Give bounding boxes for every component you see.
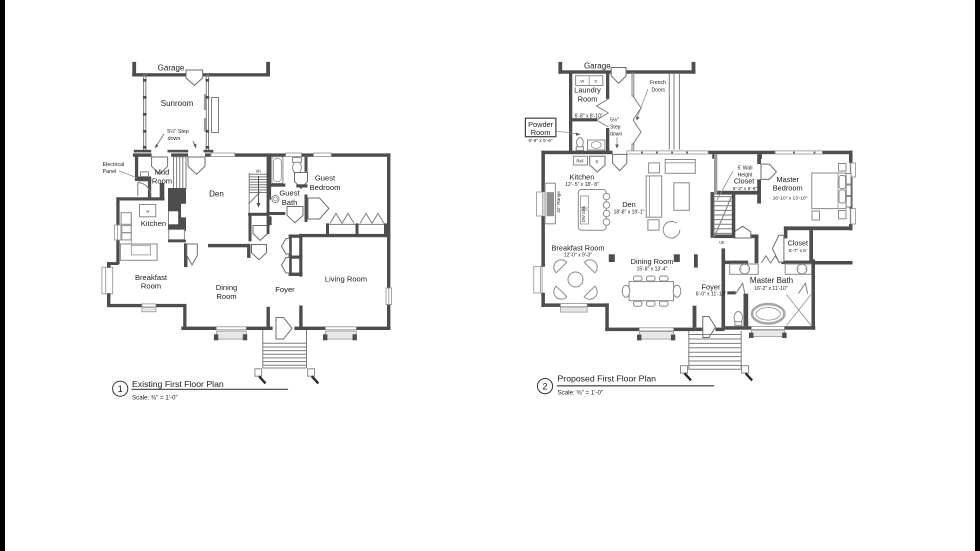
svg-text:Existing First Floor Plan: Existing First Floor Plan [132, 379, 224, 389]
svg-text:Doors: Doors [652, 88, 666, 94]
svg-text:Scale: ⅜" = 1'-0": Scale: ⅜" = 1'-0" [558, 390, 604, 397]
svg-text:6'-8" x 5'-6": 6'-8" x 5'-6" [529, 138, 553, 144]
svg-text:16'-2" x 11'-10": 16'-2" x 11'-10" [754, 286, 787, 292]
svg-text:Dining: Dining [216, 283, 238, 292]
svg-text:down: down [610, 132, 622, 138]
svg-text:Mud: Mud [155, 168, 170, 177]
svg-text:Room: Room [531, 128, 551, 137]
svg-text:5½": 5½" [610, 117, 619, 124]
svg-text:D: D [594, 79, 597, 84]
svg-text:Closet: Closet [788, 238, 808, 247]
svg-text:Room: Room [141, 282, 161, 291]
svg-text:Room: Room [216, 292, 236, 301]
svg-text:Proposed First Floor Plan: Proposed First Floor Plan [558, 373, 657, 383]
svg-text:Living Room: Living Room [325, 275, 367, 284]
svg-text:Scale: ⅜" = 1'-0": Scale: ⅜" = 1'-0" [132, 394, 178, 401]
svg-text:down: down [168, 136, 181, 142]
svg-text:Breakfast Room: Breakfast Room [552, 244, 605, 253]
svg-text:5' Wall: 5' Wall [738, 166, 753, 172]
svg-text:French: French [650, 80, 666, 86]
svg-text:Foyer: Foyer [702, 282, 721, 291]
svg-text:42" Range: 42" Range [556, 191, 561, 213]
svg-text:Closet: Closet [734, 177, 754, 186]
svg-text:6'-0" x 11'-10": 6'-0" x 11'-10" [696, 291, 727, 297]
svg-text:Bath: Bath [282, 198, 298, 207]
svg-text:Kitchen: Kitchen [570, 173, 595, 182]
svg-text:Panel: Panel [103, 169, 117, 175]
svg-text:Bedroom: Bedroom [310, 183, 341, 192]
svg-text:Sunroom: Sunroom [161, 99, 194, 108]
svg-text:Electrical: Electrical [103, 162, 125, 168]
svg-text:Guest: Guest [315, 174, 336, 183]
svg-text:8'-3" x 9'-8": 8'-3" x 9'-8" [733, 186, 757, 192]
svg-text:Laundry: Laundry [574, 86, 601, 95]
svg-text:dn: dn [256, 169, 261, 174]
svg-text:DW Sink: DW Sink [581, 205, 586, 222]
svg-text:up: up [719, 240, 724, 245]
svg-text:P.: P. [596, 159, 600, 164]
svg-text:16'-10" x 13'-10": 16'-10" x 13'-10" [773, 196, 808, 202]
svg-text:5½" Step: 5½" Step [167, 128, 189, 135]
svg-text:Step: Step [610, 125, 621, 131]
svg-text:Den: Den [209, 190, 224, 199]
svg-text:18'-8" x 19'-1": 18'-8" x 19'-1" [614, 210, 645, 216]
svg-text:2: 2 [542, 381, 547, 391]
svg-text:Guest: Guest [279, 189, 300, 198]
svg-text:Dining Room: Dining Room [631, 257, 674, 266]
svg-text:Garage: Garage [158, 64, 185, 73]
svg-text:Bedroom: Bedroom [773, 184, 803, 193]
svg-text:1: 1 [118, 384, 123, 394]
svg-text:Master Bath: Master Bath [750, 276, 793, 285]
svg-text:5'-7" x 6': 5'-7" x 6' [789, 248, 807, 254]
svg-text:ov: ov [146, 210, 150, 214]
svg-text:6'-8" x 8'-10": 6'-8" x 8'-10" [575, 114, 603, 120]
svg-text:Room: Room [578, 95, 598, 104]
svg-text:Ref.: Ref. [576, 159, 584, 164]
svg-text:Den: Den [622, 200, 636, 209]
svg-text:Foyer: Foyer [275, 285, 295, 294]
svg-text:Kitchen: Kitchen [141, 219, 166, 228]
svg-text:12'-0" x 9'-3": 12'-0" x 9'-3" [564, 253, 592, 259]
svg-text:W: W [580, 79, 584, 84]
svg-text:15'-8" x 13'-4": 15'-8" x 13'-4" [637, 267, 668, 273]
svg-text:12'- 5" x 18'- 8": 12'- 5" x 18'- 8" [565, 182, 599, 188]
svg-text:Garage: Garage [584, 62, 611, 71]
